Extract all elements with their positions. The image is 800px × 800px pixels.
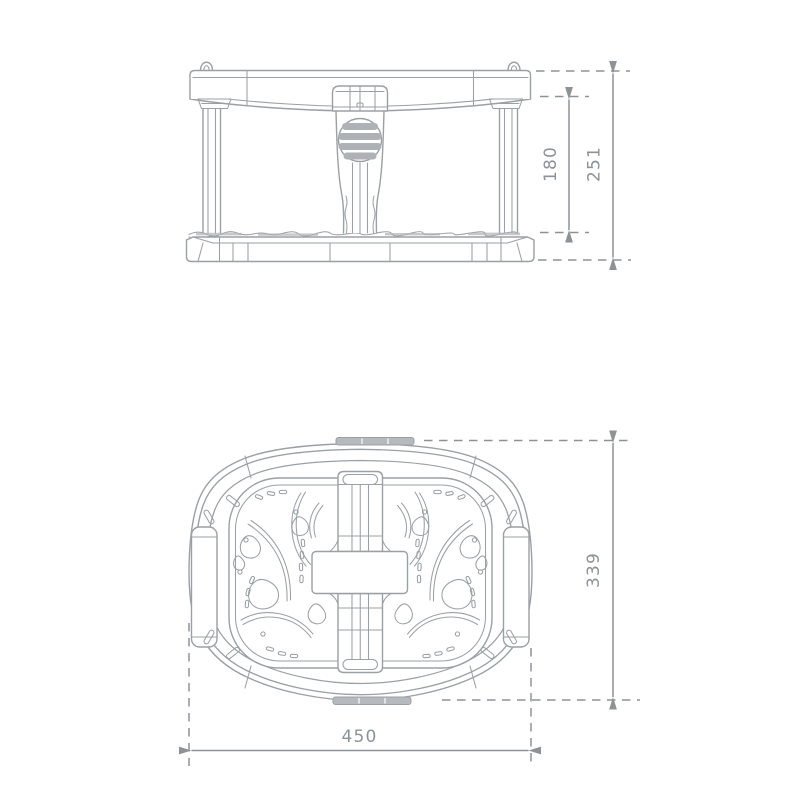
side-view-drawing xyxy=(187,62,535,261)
knob-slot xyxy=(339,143,382,150)
top-strap-column xyxy=(330,472,392,552)
side-inner-height-label: 180 xyxy=(541,146,561,182)
top-view-drawing xyxy=(189,438,532,705)
center-post xyxy=(333,86,388,233)
knob-slot xyxy=(344,153,377,160)
knob-slot xyxy=(339,133,382,140)
left-hook-outline xyxy=(201,62,213,70)
left-hook-inner xyxy=(204,66,209,71)
center-plate xyxy=(312,552,408,594)
left-rail xyxy=(192,527,218,647)
right-post xyxy=(500,109,518,234)
right-rail xyxy=(504,527,530,647)
top-depth-label: 339 xyxy=(584,552,604,588)
technical-drawing-page: 180 251 339 450 xyxy=(0,0,800,800)
bottom-strap-column xyxy=(330,594,392,673)
left-post xyxy=(203,109,221,234)
technical-drawing-canvas: 180 251 339 450 xyxy=(0,0,800,800)
side-overall-height-label: 251 xyxy=(585,146,605,182)
base-tray xyxy=(187,237,535,262)
bottom-tab xyxy=(333,697,411,705)
top-tab xyxy=(336,438,414,446)
right-hook-inner xyxy=(511,66,516,71)
right-hook-outline xyxy=(508,62,520,70)
top-width-label: 450 xyxy=(341,727,377,747)
knob-slot xyxy=(342,123,378,130)
